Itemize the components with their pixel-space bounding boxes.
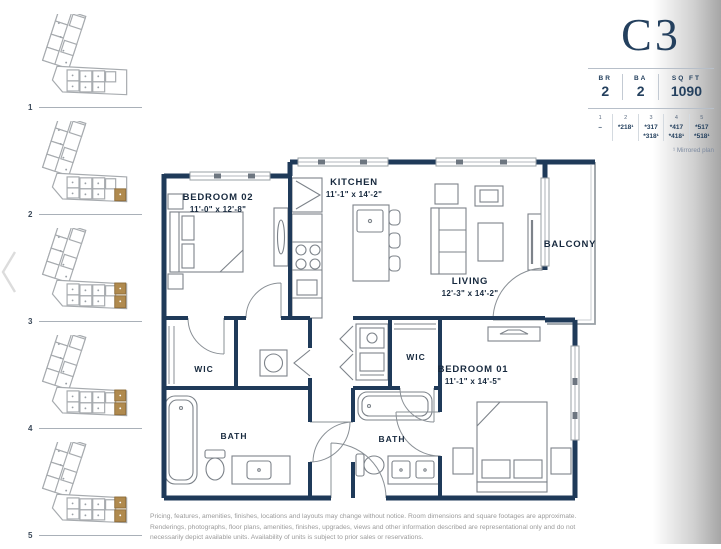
kitchen-island xyxy=(353,205,400,281)
dresser-bedroom02 xyxy=(274,208,288,266)
legal-disclaimer: Pricing, features, amenities, finishes, … xyxy=(150,512,587,544)
toilet-bath-left xyxy=(205,450,225,480)
stat-value: 2 xyxy=(588,83,622,99)
floor-number-label: 3 xyxy=(28,317,32,326)
floor-number-label: 5 xyxy=(28,531,32,540)
plan-title: C3 xyxy=(588,10,714,60)
floor-col-header: 1 xyxy=(588,114,612,123)
keyplan-floor-5-image xyxy=(22,442,136,530)
unit-number: – xyxy=(588,123,612,132)
room-label-bath-right: BATH xyxy=(379,434,406,444)
bathtub-bath-left xyxy=(165,396,197,484)
dresser-bedroom01 xyxy=(488,327,540,341)
unit-number: *417 xyxy=(664,123,688,132)
floor-number-label: 1 xyxy=(28,103,32,112)
stat-bathrooms: BA 2 xyxy=(622,74,657,100)
stat-label: SQ FT xyxy=(659,75,714,82)
stat-sqft: SQ FT 1090 xyxy=(658,74,714,100)
floorplan-page: { "page": { "title": "C3", "disclaimer":… xyxy=(0,0,721,544)
unit-info-panel: C3 BR 2 BA 2 SQ FT 1090 1 – 2 *218¹ 3 *3… xyxy=(588,10,714,154)
room-dims-bedroom02: 11'-0" x 12'-8" xyxy=(190,205,246,214)
caption-rule xyxy=(39,535,142,536)
water-heater-closet xyxy=(260,350,310,376)
room-label-kitchen: KITCHEN xyxy=(330,177,378,188)
keyplan-floor-1-image xyxy=(22,14,136,102)
closet-rod-wic-left xyxy=(169,326,174,384)
unit-number: *317 xyxy=(639,123,663,132)
caption-rule xyxy=(39,214,142,215)
keyplan-floor-5: 5 xyxy=(22,442,142,540)
stat-label: BR xyxy=(588,75,622,82)
room-label-bedroom02: BEDROOM 02 xyxy=(183,192,254,203)
bed-queen-bedroom01 xyxy=(453,402,571,492)
chevron-left-icon[interactable] xyxy=(0,248,18,296)
side-table-living xyxy=(475,186,503,206)
keyplan-floor-3-image xyxy=(22,228,136,316)
unit-col-floor5: 5 *517 *518¹ xyxy=(689,114,714,141)
floor-keyplan-sidebar: 1 2 3 4 xyxy=(22,14,142,549)
mirrored-plan-note: ¹ Mirrored plan xyxy=(588,147,714,154)
keyplan-floor-2-image xyxy=(22,121,136,209)
washer-dryer-stack xyxy=(340,324,388,380)
divider xyxy=(588,68,714,69)
floor-number-label: 4 xyxy=(28,424,32,433)
unit-number: *518¹ xyxy=(690,132,714,141)
sofa-living xyxy=(431,208,466,274)
closet-shelf-wic-right xyxy=(394,324,436,329)
room-dims-bedroom01: 11'-1" x 14'-5" xyxy=(445,377,501,386)
unit-stats: BR 2 BA 2 SQ FT 1090 xyxy=(588,74,714,100)
bathtub-bath-right xyxy=(358,392,432,420)
vanity-bath-left xyxy=(232,456,290,484)
vanity-bath-right xyxy=(388,456,440,484)
room-label-wic-left: WIC xyxy=(194,364,214,374)
unit-col-floor1: 1 – xyxy=(588,114,612,141)
unit-number: *218¹ xyxy=(613,123,637,132)
room-label-wic-right: WIC xyxy=(406,352,426,362)
caption-rule xyxy=(39,107,142,108)
keyplan-floor-1: 1 xyxy=(22,14,142,112)
stat-bedrooms: BR 2 xyxy=(588,74,622,100)
stat-value: 1090 xyxy=(659,83,714,99)
kitchen-counter xyxy=(292,178,322,318)
floor-col-header: 4 xyxy=(664,114,688,123)
stat-label: BA xyxy=(623,75,657,82)
unit-number: *318¹ xyxy=(639,132,663,141)
floor-number-label: 2 xyxy=(28,210,32,219)
room-dims-kitchen: 11'-1" x 14'-2" xyxy=(326,190,382,199)
unit-availability-grid: 1 – 2 *218¹ 3 *317 *318¹ 4 *417 *418¹ 5 … xyxy=(588,114,714,141)
room-label-bedroom01: BEDROOM 01 xyxy=(438,364,509,375)
unit-number: *418¹ xyxy=(664,132,688,141)
floor-col-header: 3 xyxy=(639,114,663,123)
caption-rule xyxy=(39,321,142,322)
unit-col-floor2: 2 *218¹ xyxy=(612,114,637,141)
unit-col-floor3: 3 *317 *318¹ xyxy=(638,114,663,141)
room-label-bath-left: BATH xyxy=(221,431,248,441)
keyplan-floor-4-image xyxy=(22,335,136,423)
room-label-living: LIVING xyxy=(452,276,488,287)
coffee-table-living xyxy=(478,223,503,261)
tv-console-living xyxy=(528,214,542,270)
room-label-balcony: BALCONY xyxy=(544,239,597,250)
keyplan-floor-2: 2 xyxy=(22,121,142,219)
keyplan-floor-3: 3 xyxy=(22,228,142,326)
unit-floorplan: BEDROOM 02 11'-0" x 12'-8" KITCHEN 11'-1… xyxy=(148,150,598,506)
armchair-living xyxy=(435,184,458,204)
unit-number: *517 xyxy=(690,123,714,132)
stat-value: 2 xyxy=(623,83,657,99)
unit-col-floor4: 4 *417 *418¹ xyxy=(663,114,688,141)
room-dims-living: 12'-3" x 14'-2" xyxy=(442,289,499,298)
keyplan-floor-4: 4 xyxy=(22,335,142,433)
floor-col-header: 2 xyxy=(613,114,637,123)
caption-rule xyxy=(39,428,142,429)
divider xyxy=(588,108,714,109)
floor-col-header: 5 xyxy=(690,114,714,123)
